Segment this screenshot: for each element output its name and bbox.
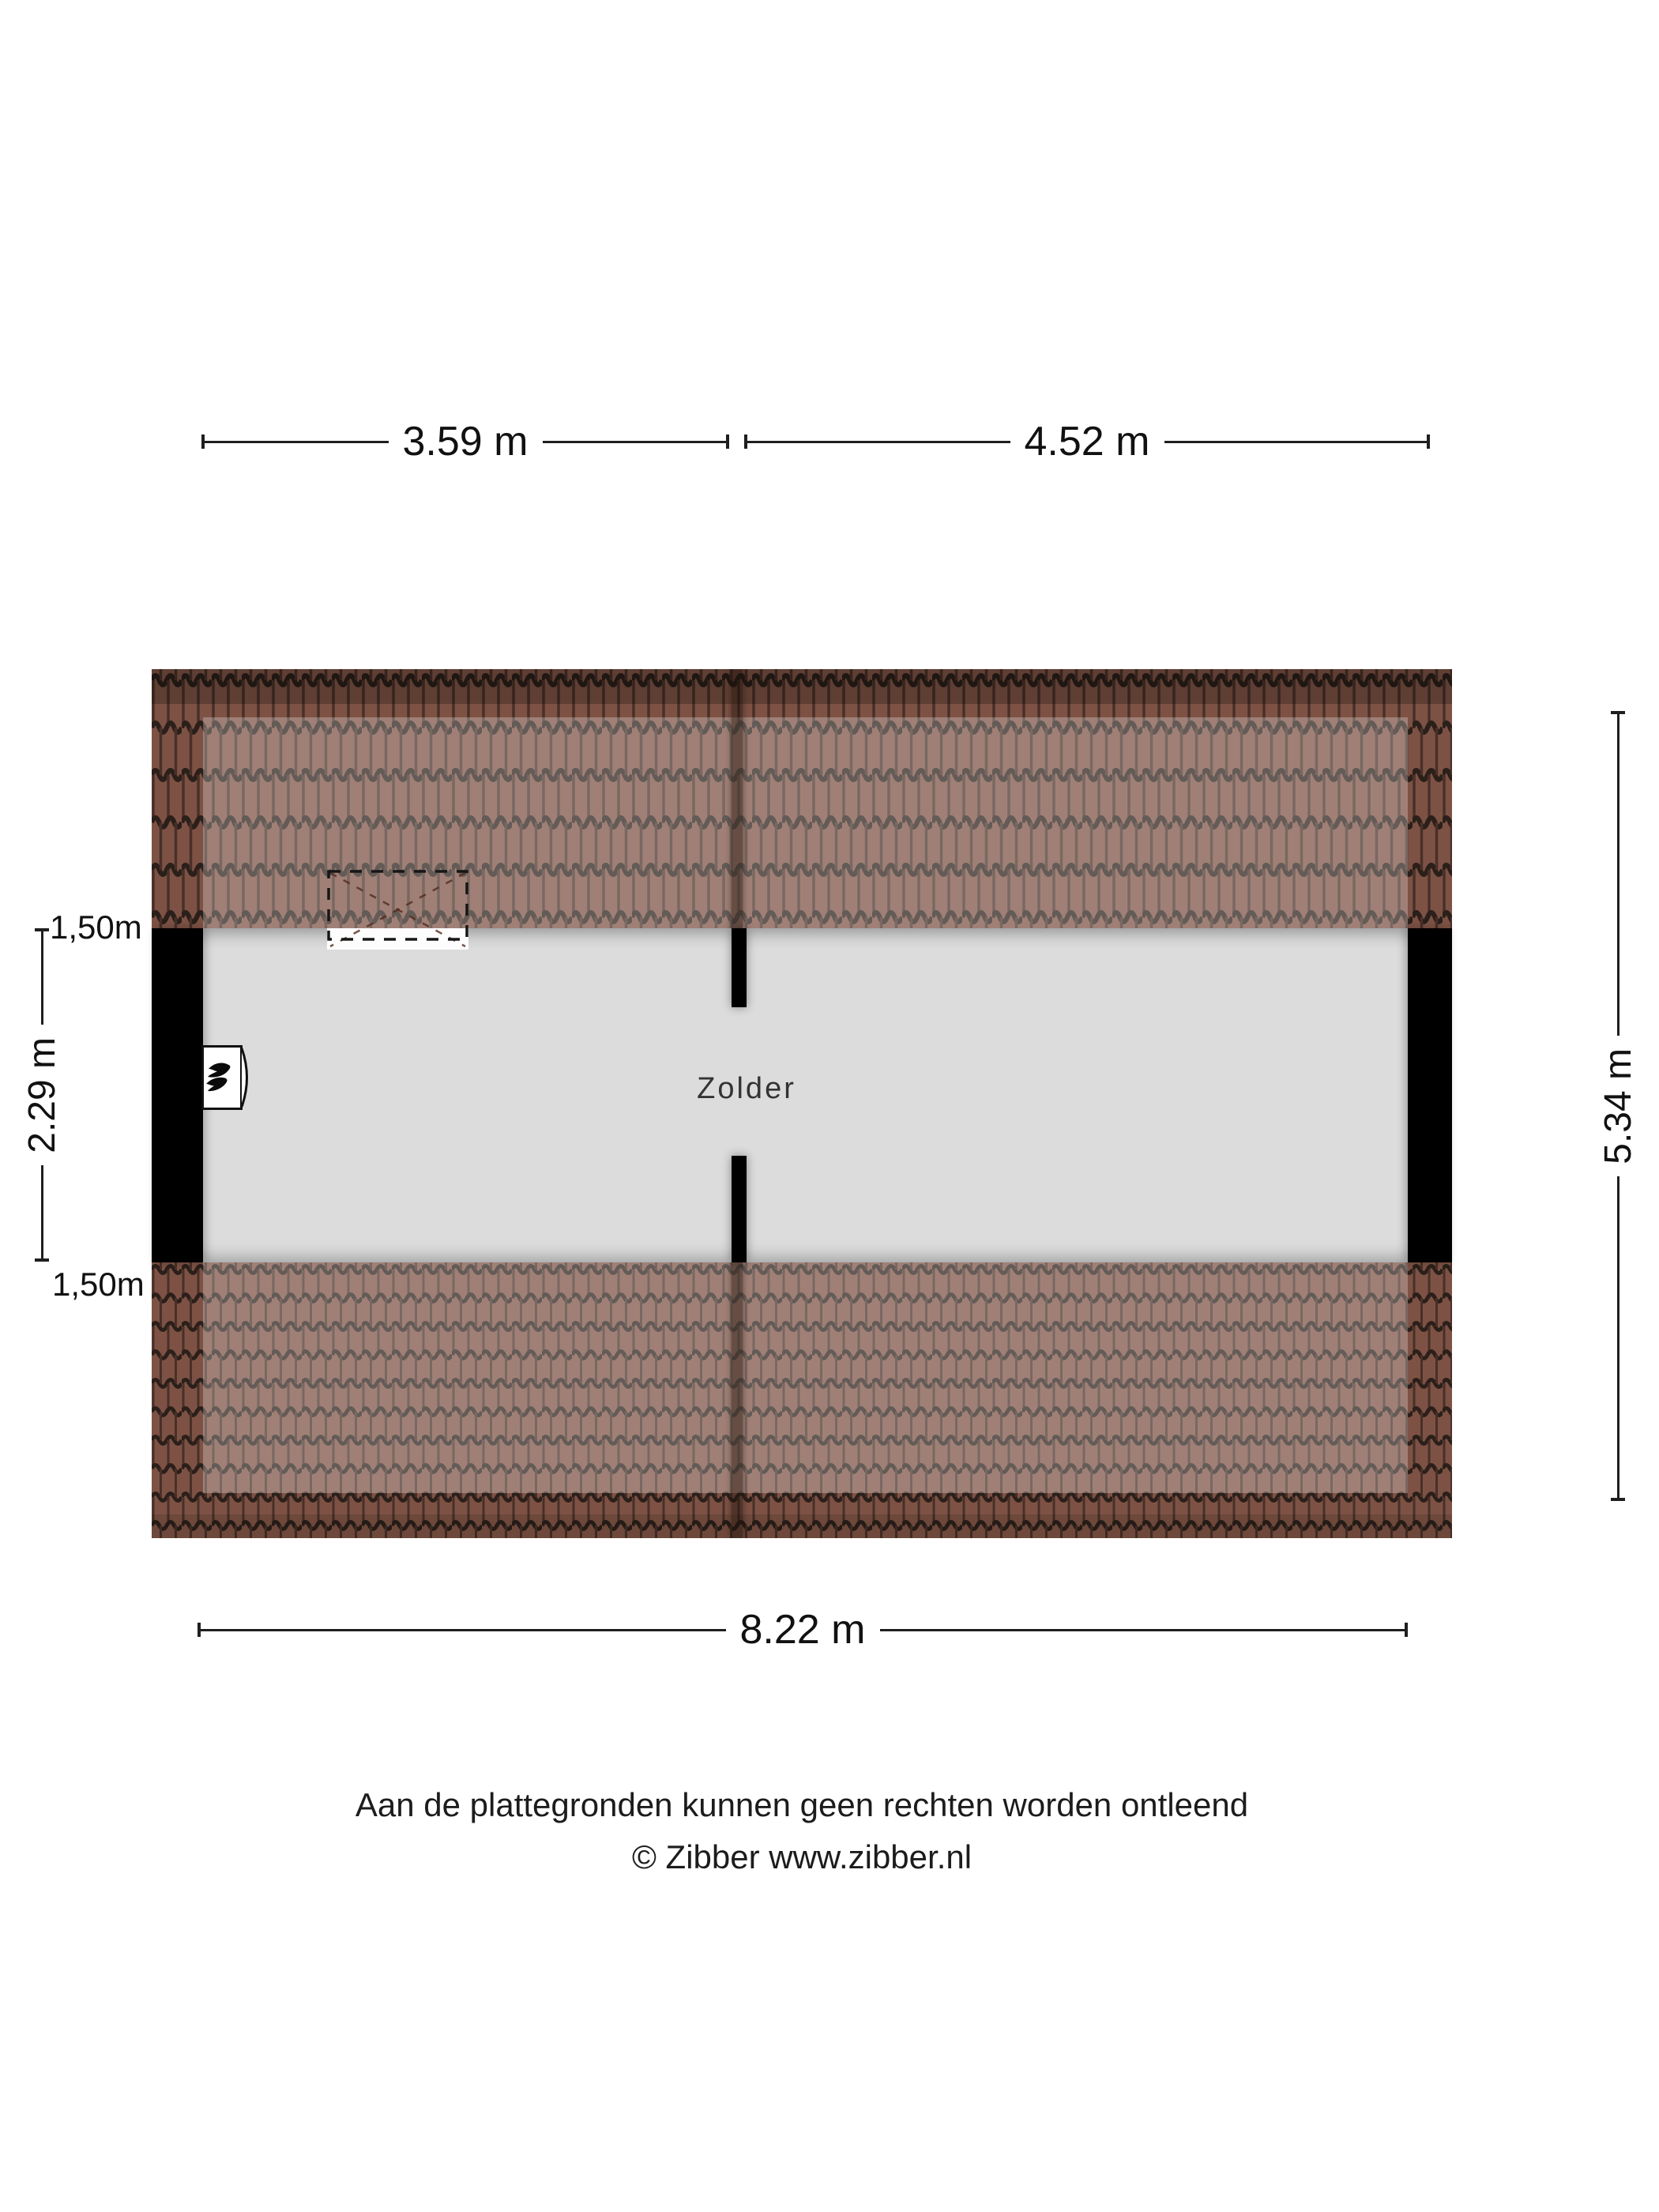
- dimension-line: [205, 441, 389, 443]
- dimension-line: [543, 441, 727, 443]
- wall-left: [152, 928, 203, 1262]
- roof-inner-area: [203, 1262, 1408, 1493]
- dimension-left: 2.29 m: [21, 928, 63, 1262]
- center-wall-stub-top: [732, 928, 747, 1007]
- wall-right: [1408, 928, 1452, 1262]
- boiler-unit: [201, 1045, 252, 1110]
- center-wall-stub-bottom: [732, 1156, 747, 1262]
- attic-floorplan: Zolder: [152, 669, 1452, 1538]
- dimension-line: [41, 1165, 43, 1258]
- dimension-tick: [1405, 1623, 1408, 1637]
- dimension-tick: [1611, 1498, 1625, 1501]
- dimension-line: [880, 1629, 1405, 1631]
- dimension-label: 8.22 m: [726, 1606, 880, 1653]
- dimension-bottom: 8.22 m: [197, 1609, 1408, 1650]
- roof-slope-bottom: [152, 1262, 1452, 1538]
- dimension-top-right: 4.52 m: [744, 421, 1430, 462]
- dimension-right: 5.34 m: [1597, 711, 1639, 1501]
- roof-ridge-shade: [152, 669, 1452, 704]
- dimension-line: [201, 1629, 726, 1631]
- dimension-line: [41, 931, 43, 1025]
- roof-center-seam: [732, 669, 743, 928]
- dimension-tick: [1427, 434, 1430, 449]
- height-label-upper: 1,50m: [50, 908, 142, 946]
- roof-eaves-shade: [152, 1514, 1452, 1538]
- dimension-tick: [35, 1258, 49, 1262]
- dimension-line: [1164, 441, 1428, 443]
- room-label: Zolder: [589, 1072, 905, 1106]
- dimension-label: 5.34 m: [1597, 1036, 1640, 1177]
- dimension-line: [1617, 714, 1619, 1036]
- dimension-tick: [726, 434, 729, 449]
- footer-disclaimer: Aan de plattegronden kunnen geen rechten…: [152, 1779, 1452, 1831]
- dimension-line: [1617, 1176, 1619, 1498]
- height-label-lower: 1,50m: [52, 1266, 145, 1303]
- dimension-label: 2.29 m: [21, 1025, 64, 1166]
- floorplan-canvas: 3.59 m 4.52 m 1,50m 2.29 m 1,50m 5.34 m: [0, 0, 1659, 2212]
- dimension-label: 4.52 m: [1010, 418, 1164, 465]
- footer-credit: © Zibber www.zibber.nl: [152, 1831, 1452, 1883]
- dimension-line: [747, 441, 1010, 443]
- footer: Aan de plattegronden kunnen geen rechten…: [152, 1779, 1452, 1883]
- roof-window-icon: [327, 870, 468, 950]
- dimension-label: 3.59 m: [389, 418, 543, 465]
- dimension-top-left: 3.59 m: [201, 421, 729, 462]
- roof-center-seam: [732, 1262, 743, 1538]
